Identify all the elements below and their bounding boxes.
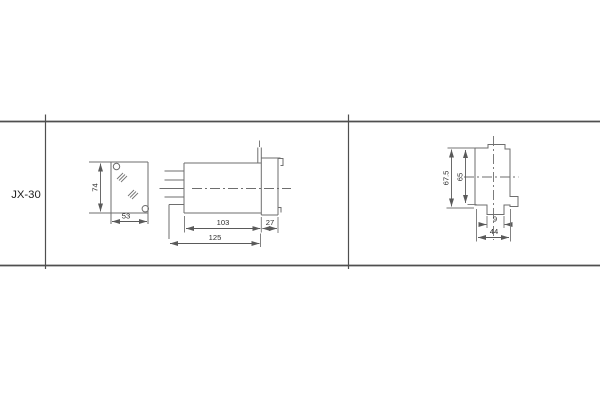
model-label: JX-30	[11, 189, 41, 201]
side-dim-overall: 125	[170, 233, 261, 247]
rear-view-outline	[475, 145, 518, 215]
side-dim-overall-value: 125	[209, 233, 222, 242]
side-dim-flange-value: 27	[266, 218, 274, 227]
rear-dim-width-value: 44	[490, 227, 498, 236]
front-dim-height-value: 74	[91, 183, 100, 191]
side-dim-body-value: 103	[217, 218, 230, 227]
rear-view: 67.5 65 9 44	[442, 136, 519, 242]
mounting-bracket	[169, 205, 184, 240]
side-view: 103 27 125	[160, 141, 292, 248]
glass-hatch-mark-upper	[117, 173, 127, 182]
front-dim-height: 74	[91, 164, 101, 212]
mounting-hole-top	[113, 163, 119, 169]
glass-hatch-mark-lower	[128, 190, 138, 199]
terminal-pins	[160, 171, 185, 197]
rear-dim-slot-value: 9	[493, 215, 497, 224]
rear-dim-slot: 9	[480, 215, 512, 229]
datasheet-dimensions-panel: JX-30 74 53	[0, 0, 600, 400]
side-dim-body: 103	[185, 216, 279, 233]
front-dim-width-value: 53	[122, 212, 130, 221]
front-view-outline	[89, 162, 149, 224]
front-view: 74 53	[89, 162, 149, 224]
rear-dim-body-height-value: 65	[456, 173, 465, 181]
flange-top-clip	[278, 159, 283, 167]
side-dim-flange: 27	[262, 218, 277, 229]
dimension-drawing-canvas: JX-30 74 53	[0, 0, 600, 400]
rear-dim-overall-height-value: 67.5	[442, 171, 451, 186]
